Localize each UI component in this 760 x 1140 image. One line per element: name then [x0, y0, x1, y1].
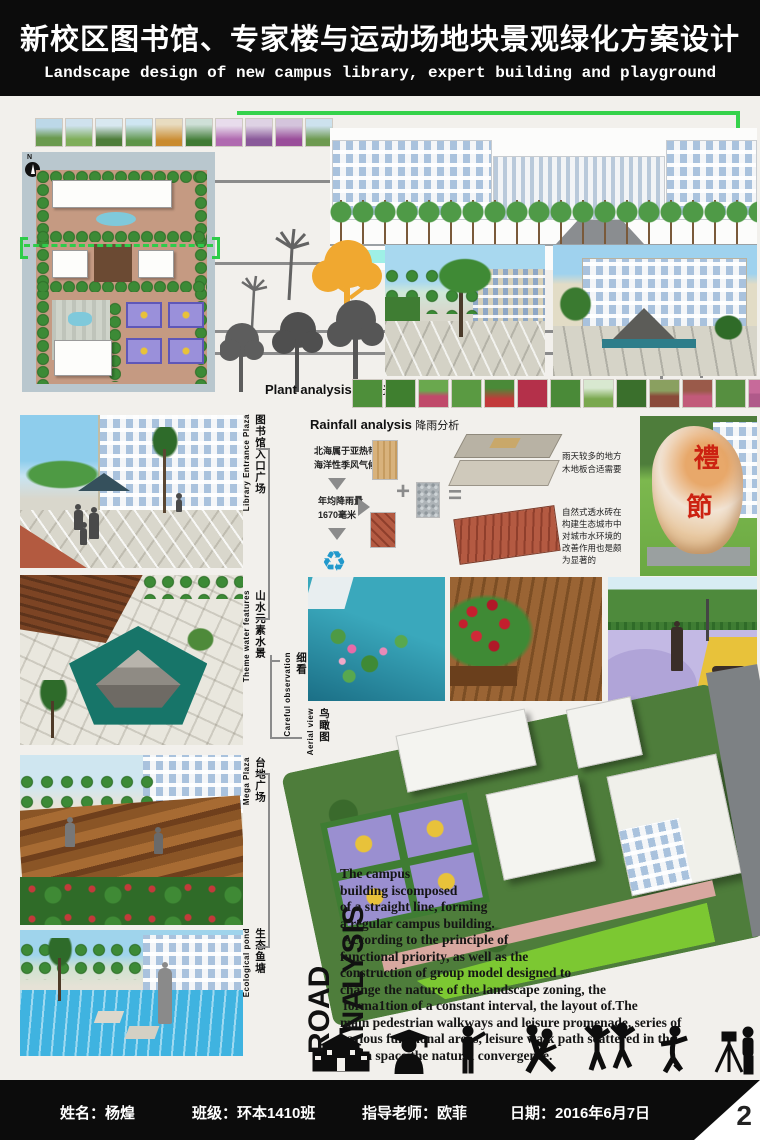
tree-photo: [95, 118, 123, 147]
water-cycle-icon: ♻: [316, 544, 352, 580]
stone-inscription-char2: 節: [686, 487, 712, 524]
right-arrow-icon: [358, 498, 370, 516]
label-en: Library Entrance Plaza: [242, 414, 251, 511]
person-silhouette: [176, 499, 182, 512]
fountain-plaza-rendering: [553, 245, 757, 376]
tree-silhouette-icon: [272, 312, 323, 392]
street-view-rendering: [385, 245, 545, 376]
permeable-brick-image: [453, 505, 560, 565]
tree-photo: [155, 118, 183, 147]
person-silhouette: [80, 528, 87, 545]
shrub-photo: [715, 379, 746, 408]
page-corner: 2: [694, 1080, 760, 1140]
plan-axis-dashed-line: [24, 244, 213, 247]
palm-trunk: [163, 449, 166, 513]
aerial-building: [395, 708, 536, 792]
shrub-photo: [352, 379, 383, 408]
footer-class: 班级：环本1410班: [192, 1102, 315, 1123]
person-silhouette: [671, 627, 683, 671]
hedge: [143, 575, 243, 599]
bracket-tick: [256, 448, 268, 450]
wood-swatch: [372, 440, 398, 480]
label-zh: 山水元素水景: [253, 590, 268, 682]
rainfall-title-en: Rainfall analysis: [310, 417, 412, 432]
red-flowers: [450, 587, 538, 669]
dancing-couple-icon: [516, 1024, 562, 1074]
shrub-photo-strip: [352, 379, 760, 408]
palm-silhouette-icon: [242, 276, 267, 328]
theme-water-feature-image: [20, 575, 243, 745]
light-pole: [706, 599, 709, 641]
school-icon: [312, 1028, 370, 1074]
street-paving: [385, 321, 545, 376]
planter-model-image: [452, 430, 562, 492]
plan-pond: [96, 212, 136, 226]
label-zh: 生态鱼塘: [253, 928, 268, 997]
plan-courtyard: [94, 244, 132, 282]
aerial-building: [486, 775, 596, 881]
plaza-pool: [602, 339, 696, 348]
shrub-photo: [484, 379, 515, 408]
tree-silhouette-icon: [220, 323, 264, 392]
person-silhouette: [158, 968, 172, 1024]
label-theme-water-features: Theme water features 山水元素水景: [242, 590, 268, 682]
monument-stone: 禮 節: [652, 426, 743, 554]
elevation-tree-row: [330, 200, 757, 244]
graduate-icon: [388, 1028, 430, 1074]
person-silhouette: [65, 823, 75, 847]
bracket-tick: [256, 773, 268, 775]
bracket-line: [268, 773, 270, 948]
plan-building: [54, 340, 112, 376]
plan-basketball-court: [126, 302, 162, 328]
footer-advisor: 指导老师：欧菲: [362, 1102, 467, 1123]
shrub-photo: [418, 379, 449, 408]
canopy-structure: [78, 473, 130, 491]
planter-soil: [489, 438, 520, 448]
label-zh: 台地广场: [253, 757, 268, 805]
north-label: N: [27, 154, 32, 161]
bracket-line: [270, 655, 272, 739]
plan-tree-belt: [36, 170, 49, 384]
tree-photo: [275, 118, 303, 147]
dancer-icon: [655, 1026, 691, 1074]
down-arrow-icon: [328, 478, 346, 490]
green-bracket-top: [237, 111, 740, 115]
mega-plaza-image: [20, 755, 243, 925]
street-tree-crown: [433, 255, 497, 297]
palm-trunk: [58, 958, 61, 1001]
stepping-stone: [94, 1011, 124, 1023]
footer: 姓名：杨煌 班级：环本1410班 指导老师：欧菲 日期：2016年6月7日 2: [0, 1080, 760, 1140]
ecological-pond-image: [20, 930, 243, 1056]
library-entrance-plaza-image: [20, 415, 243, 568]
bracket-tick: [256, 618, 268, 620]
tree-photo: [305, 118, 333, 147]
plant-analysis-en: Plant analysis: [265, 382, 352, 397]
header: 新校区图书馆、专家楼与运动场地块景观绿化方案设计 Landscape desig…: [0, 0, 760, 96]
bracket-tick: [256, 946, 268, 948]
label-en: Theme water features: [242, 590, 251, 682]
pond-trees: [20, 943, 154, 981]
axis-bracket-left: [20, 237, 28, 259]
shrub-photo: [616, 379, 647, 408]
tree-photo: [35, 118, 63, 147]
lotus-pond-image: [308, 577, 445, 701]
lecturer-icon: [455, 1026, 489, 1074]
permeable-brick-note: 自然式透水砖在 构建生态城市中 对城市水环境的 改善作用也是颇 为显著的: [562, 506, 622, 566]
bracket-tick: [270, 660, 280, 662]
site-plan: N: [22, 152, 215, 392]
shrub-photo: [550, 379, 581, 408]
rainfall-analysis-title: Rainfall analysis 降雨分析: [310, 417, 459, 433]
tree-photo: [185, 118, 213, 147]
shrub-photo: [583, 379, 614, 408]
poster: 新校区图书馆、专家楼与运动场地块景观绿化方案设计 Landscape desig…: [0, 0, 760, 1140]
surveyor-icon: [706, 1024, 758, 1076]
palm-silhouette-icon: [276, 229, 309, 300]
shrub-photo: [682, 379, 713, 408]
shrub-photo: [748, 379, 760, 408]
plus-sign: +: [396, 478, 410, 506]
celebration-icon: [582, 1022, 638, 1074]
tree-photo: [65, 118, 93, 147]
down-arrow-icon: [328, 528, 346, 540]
label-mega-plaza: Mega Plaza 台地广场: [242, 757, 268, 805]
shrub-photo: [517, 379, 548, 408]
lotus-plants: [308, 577, 445, 701]
page-subtitle: Landscape design of new campus library, …: [0, 64, 760, 82]
person-silhouette: [89, 513, 99, 539]
plan-building: [138, 250, 174, 278]
brick-swatch: [370, 512, 396, 548]
shrub-photo: [385, 379, 416, 408]
page-number: 2: [736, 1100, 752, 1132]
pond-water: [20, 990, 243, 1056]
shrub-photo: [649, 379, 680, 408]
stone-swatch: [416, 482, 440, 518]
axis-bracket-right: [212, 237, 220, 259]
plaza-tree: [557, 284, 594, 323]
bracket-line: [268, 448, 270, 620]
planter-edge: [450, 666, 517, 686]
footer-date: 日期：2016年6月7日: [510, 1102, 650, 1123]
shrub-photo: [451, 379, 482, 408]
wood-paving-note: 雨天较多的地方 木地板合适需要: [562, 450, 622, 476]
tree-photo: [215, 118, 243, 147]
stone-monument-image: 禮 節: [640, 416, 757, 576]
plan-basketball-court: [126, 338, 162, 364]
climate-note: 北海属于亚热带 海洋性季风气候: [314, 444, 377, 472]
tree-photo-strip: [35, 118, 333, 147]
tree-photo: [125, 118, 153, 147]
tree-silhouettes: [220, 222, 385, 394]
label-ecological-pond: Ecological pond 生态鱼塘: [242, 928, 268, 997]
page-title: 新校区图书馆、专家楼与运动场地块景观绿化方案设计: [0, 16, 760, 58]
plan-basketball-court: [168, 338, 204, 364]
label-en: Mega Plaza: [242, 757, 251, 805]
plan-building: [52, 180, 172, 208]
footer-name: 姓名：杨煌: [60, 1102, 135, 1123]
plan-basketball-court: [168, 302, 204, 328]
label-library-entrance-plaza: Library Entrance Plaza 图书馆入口广场: [242, 414, 268, 511]
tree-photo: [245, 118, 273, 147]
stepping-stone: [125, 1026, 160, 1039]
planter-shrub: [185, 626, 216, 653]
aerial-building: [566, 696, 643, 768]
plan-pond: [68, 312, 92, 326]
plan-building: [52, 250, 88, 278]
plaza-pyramid-fountain: [610, 308, 678, 342]
label-zh: 图书馆入口广场: [253, 414, 268, 511]
palm-trunk: [51, 701, 54, 738]
label-en: Ecological pond: [242, 928, 251, 997]
plan-tree-belt: [36, 230, 207, 242]
flower-planter-image: [450, 577, 602, 701]
planting-bed: [20, 877, 243, 925]
person-silhouette: [154, 833, 163, 854]
stone-inscription-char1: 禮: [694, 438, 720, 475]
plaza-palm: [712, 313, 745, 342]
rainfall-amount: 年均降雨量 1670毫米: [318, 494, 363, 522]
